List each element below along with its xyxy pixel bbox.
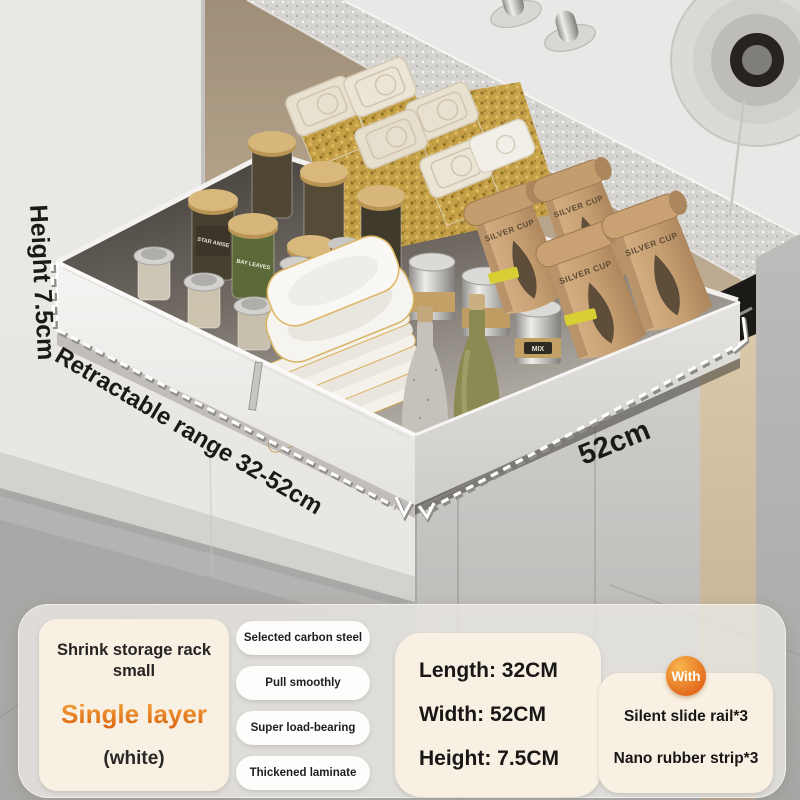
feature-pill: Super load-bearing bbox=[236, 711, 370, 745]
with-badge: With bbox=[666, 656, 706, 696]
herb-jar bbox=[248, 131, 296, 218]
product-infographic: STAR ANISE BAY LEAVES CHILLI PEPPER bbox=[0, 0, 800, 800]
product-title: Shrink storage rack small bbox=[39, 640, 229, 681]
feature-list: Selected carbon steel Pull smoothly Supe… bbox=[236, 621, 370, 790]
included-item: Silent slide rail*3 bbox=[624, 708, 748, 726]
dimensions-card: Length: 32CM Width: 52CM Height: 7.5CM bbox=[395, 633, 601, 797]
product-color-option: (white) bbox=[39, 748, 229, 770]
feature-pill: Selected carbon steel bbox=[236, 621, 370, 655]
spice-jar bbox=[184, 273, 224, 328]
spice-jar bbox=[134, 247, 174, 300]
product-variant: Single layer bbox=[39, 699, 229, 730]
info-panel: Shrink storage rack small Single layer (… bbox=[18, 604, 786, 798]
product-card: Shrink storage rack small Single layer (… bbox=[39, 619, 229, 791]
included-item: Nano rubber strip*3 bbox=[614, 750, 759, 768]
canister-label: MIX bbox=[532, 346, 545, 353]
herb-jar-star-anise: STAR ANISE bbox=[188, 189, 238, 280]
herb-jar bbox=[300, 161, 348, 248]
feature-pill: Thickened laminate bbox=[236, 756, 370, 790]
included-card: With Silent slide rail*3 Nano rubber str… bbox=[599, 673, 773, 793]
dimension-width: Width: 52CM bbox=[419, 703, 601, 727]
dimension-length: Length: 32CM bbox=[419, 659, 601, 683]
dimension-height: Height: 7.5CM bbox=[419, 747, 601, 771]
feature-pill: Pull smoothly bbox=[236, 666, 370, 700]
